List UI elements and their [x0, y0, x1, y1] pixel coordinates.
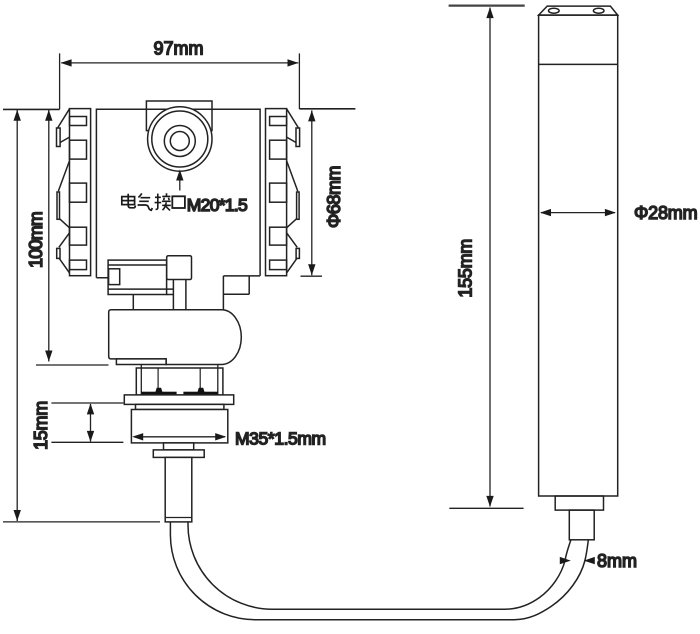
- svg-text:M35*1.5mm: M35*1.5mm: [235, 429, 326, 449]
- svg-text:8mm: 8mm: [597, 551, 637, 571]
- svg-text:Φ68mm: Φ68mm: [324, 166, 344, 228]
- svg-text:100mm: 100mm: [26, 212, 46, 268]
- svg-text:Φ28mm: Φ28mm: [634, 203, 697, 223]
- svg-text:M20*1.5: M20*1.5: [187, 195, 247, 215]
- svg-text:155mm: 155mm: [456, 239, 476, 298]
- svg-text:15mm: 15mm: [31, 401, 51, 450]
- svg-text:97mm: 97mm: [153, 39, 203, 59]
